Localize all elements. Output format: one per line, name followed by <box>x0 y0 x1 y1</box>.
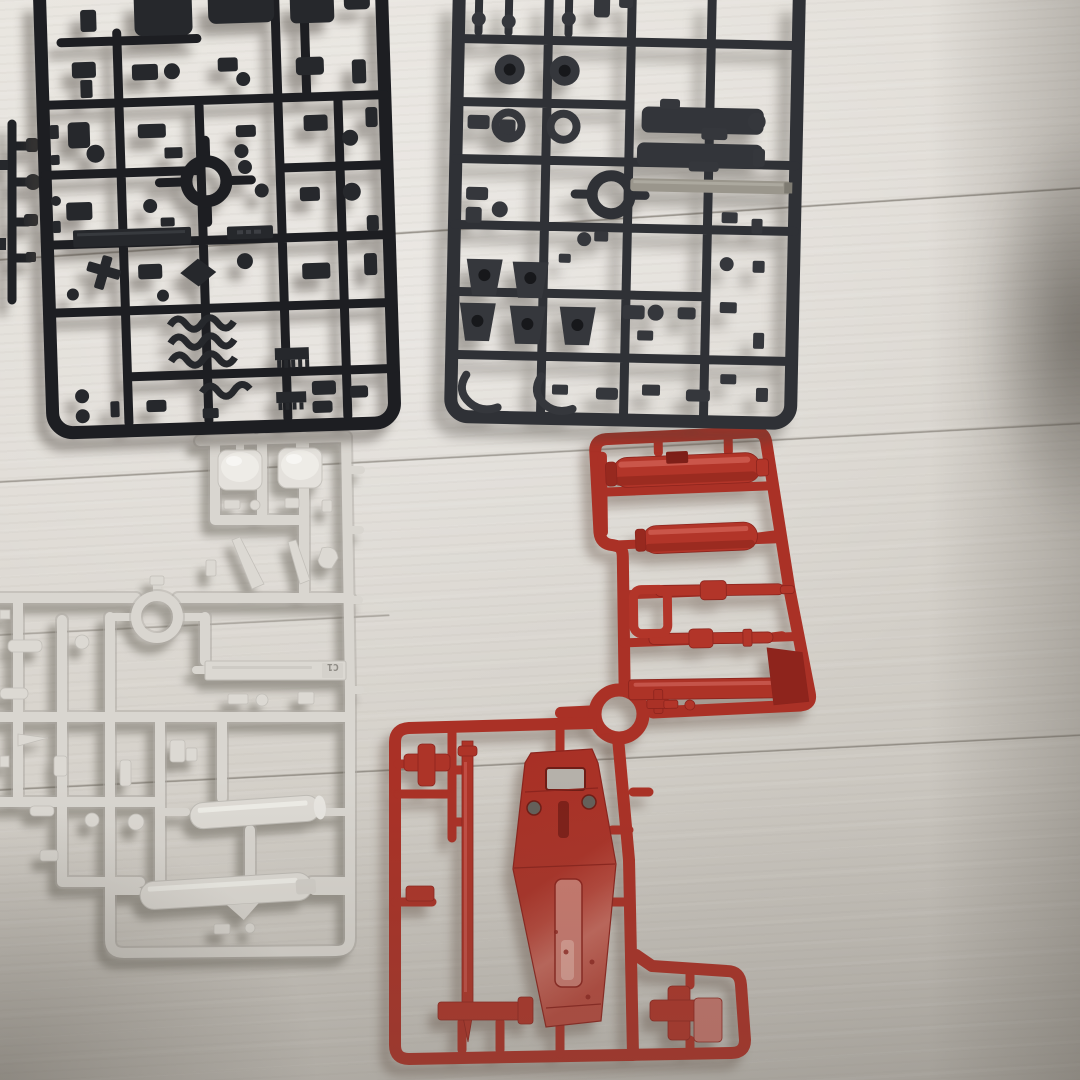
dark-gray-runner <box>428 0 830 448</box>
vernier-cross-part <box>650 986 722 1042</box>
photo-scene: C1 <box>0 0 1080 1080</box>
gray-parts <box>458 0 777 403</box>
shield-window-cutout <box>546 768 585 790</box>
runner-label-tag: C1 <box>205 661 346 680</box>
head-dome-parts <box>218 448 322 490</box>
black-parts <box>44 0 387 424</box>
bazooka-parts <box>605 448 770 555</box>
gate-ring <box>186 161 227 202</box>
out-of-focus-shadow <box>900 60 1080 660</box>
gate-ring <box>592 175 631 214</box>
metal-rod-part <box>630 178 792 194</box>
beam-rod-part <box>458 741 477 1042</box>
cylinder-part <box>189 794 326 829</box>
light-gray-runner: C1 <box>0 423 372 963</box>
shield-part <box>513 749 616 1027</box>
molded-bar-part <box>73 224 273 247</box>
black-runner <box>15 0 415 450</box>
runner-tag-text: C1 <box>327 661 339 672</box>
red-runner-lower <box>370 683 776 1080</box>
